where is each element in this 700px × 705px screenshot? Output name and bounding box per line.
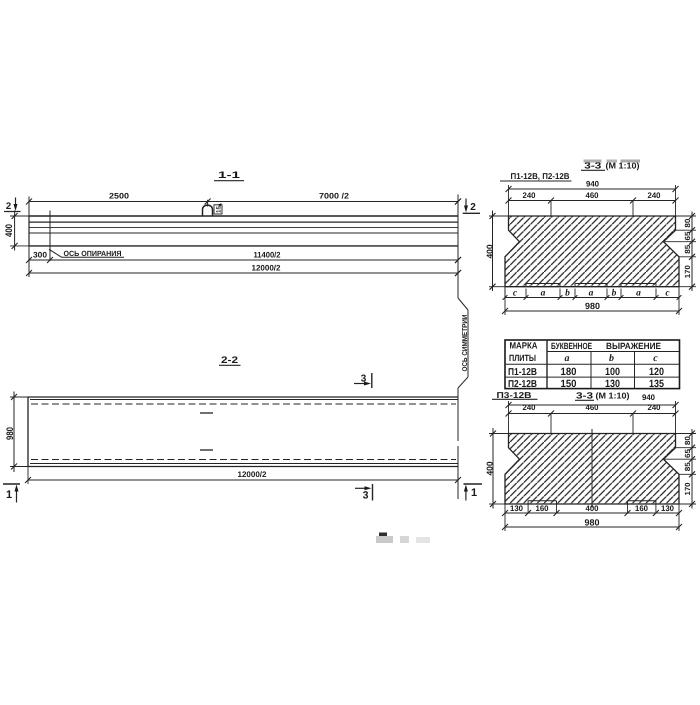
svg-text:120: 120 xyxy=(649,366,664,378)
svg-text:12000/2: 12000/2 xyxy=(252,264,282,273)
svg-text:80: 80 xyxy=(683,219,692,228)
svg-text:b: b xyxy=(612,289,617,299)
svg-text:1-1: 1-1 xyxy=(218,170,241,181)
svg-text:П1-12В: П1-12В xyxy=(508,367,537,378)
svg-text:170: 170 xyxy=(683,483,692,496)
svg-text:3: 3 xyxy=(361,374,367,385)
svg-text:460: 460 xyxy=(586,191,600,200)
svg-text:b: b xyxy=(565,289,570,299)
svg-text:300: 300 xyxy=(33,251,48,260)
svg-text:a: a xyxy=(541,289,546,299)
svg-text:980: 980 xyxy=(5,427,16,440)
svg-text:15: 15 xyxy=(215,206,222,213)
svg-text:980: 980 xyxy=(585,518,600,528)
svg-text:1: 1 xyxy=(6,489,12,501)
svg-text:240: 240 xyxy=(523,191,537,200)
svg-text:160: 160 xyxy=(536,504,550,513)
svg-text:2: 2 xyxy=(6,201,11,212)
svg-text:П3-12В: П3-12В xyxy=(497,390,532,400)
svg-text:940: 940 xyxy=(586,180,600,189)
svg-text:85: 85 xyxy=(683,462,692,471)
svg-text:7000 /2: 7000 /2 xyxy=(319,192,350,201)
svg-text:460: 460 xyxy=(586,403,600,412)
svg-text:400: 400 xyxy=(4,224,15,237)
svg-text:ОСЬ ОПИРАНИЯ: ОСЬ ОПИРАНИЯ xyxy=(64,249,122,258)
svg-text:c: c xyxy=(653,353,658,364)
svg-text:a: a xyxy=(636,289,641,299)
svg-text:ПЛИТЫ: ПЛИТЫ xyxy=(509,353,536,363)
svg-text:240: 240 xyxy=(648,403,662,412)
svg-text:b: b xyxy=(609,353,614,364)
svg-text:П2-12В: П2-12В xyxy=(508,379,537,390)
svg-text:a: a xyxy=(589,289,594,299)
svg-text:135: 135 xyxy=(649,378,664,390)
svg-text:ВЫРАЖЕНИЕ: ВЫРАЖЕНИЕ xyxy=(606,341,661,351)
svg-text:170: 170 xyxy=(683,265,692,278)
svg-text:МАРКА: МАРКА xyxy=(510,341,538,351)
svg-text:85: 85 xyxy=(683,245,692,254)
svg-text:400: 400 xyxy=(484,244,494,258)
svg-text:130: 130 xyxy=(510,504,524,513)
svg-text:940: 940 xyxy=(642,393,656,402)
svg-text:240: 240 xyxy=(523,403,537,412)
svg-text:(М 1:10): (М 1:10) xyxy=(596,391,630,401)
svg-text:12000/2: 12000/2 xyxy=(238,470,268,479)
svg-text:150: 150 xyxy=(561,378,577,390)
svg-text:a: a xyxy=(565,353,570,364)
svg-text:65: 65 xyxy=(683,449,692,458)
svg-text:980: 980 xyxy=(585,301,600,311)
svg-text:БУКВЕННОЕ: БУКВЕННОЕ xyxy=(551,341,592,351)
svg-text:11400/2: 11400/2 xyxy=(254,251,282,260)
svg-text:1: 1 xyxy=(471,487,477,499)
svg-text:180: 180 xyxy=(561,366,577,378)
svg-text:3-3: 3-3 xyxy=(576,391,593,401)
svg-text:130: 130 xyxy=(661,504,675,513)
svg-text:100: 100 xyxy=(605,366,620,378)
svg-text:2: 2 xyxy=(470,202,476,213)
svg-text:2500: 2500 xyxy=(109,192,130,201)
svg-text:3: 3 xyxy=(363,490,369,502)
svg-text:240: 240 xyxy=(648,191,662,200)
svg-text:2-2: 2-2 xyxy=(221,355,238,366)
svg-text:ОСЬ СИММЕТРИИ: ОСЬ СИММЕТРИИ xyxy=(462,315,469,372)
svg-text:65: 65 xyxy=(683,232,692,241)
svg-text:П1-12В, П2-12В: П1-12В, П2-12В xyxy=(511,171,570,181)
svg-text:400: 400 xyxy=(485,461,495,475)
svg-text:400: 400 xyxy=(586,504,600,513)
svg-text:130: 130 xyxy=(605,378,620,390)
svg-text:160: 160 xyxy=(635,504,649,513)
svg-text:80: 80 xyxy=(683,436,692,445)
